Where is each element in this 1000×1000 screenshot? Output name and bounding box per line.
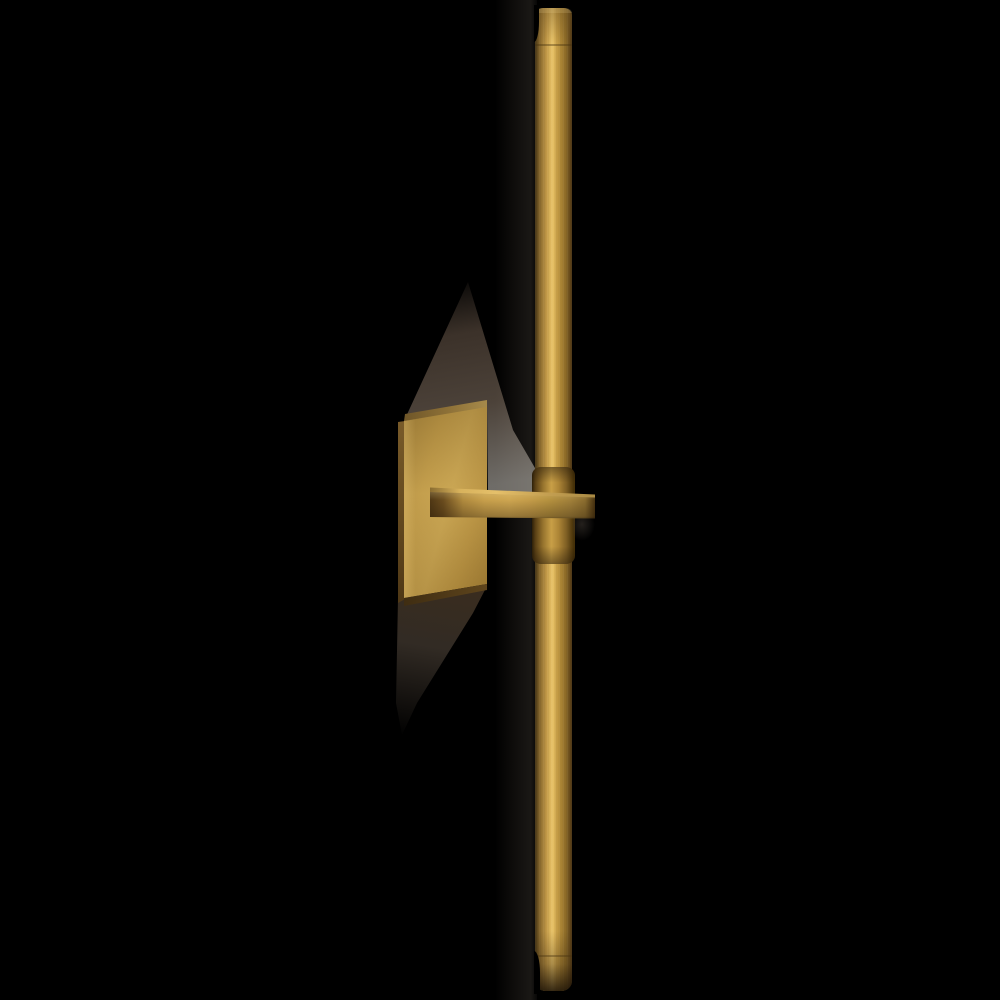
- wall-shadow-lower: [393, 583, 493, 745]
- rod-top-rim: [535, 8, 572, 13]
- arm-end-shadow: [573, 517, 595, 541]
- rod-top-seam: [535, 44, 572, 46]
- backplate-left-face: [398, 413, 405, 607]
- sconce-product-image: [0, 0, 1000, 1000]
- rod-bottom-cap: [535, 931, 572, 991]
- rod-top-cap: [535, 8, 572, 48]
- rod-bottom-seam: [535, 955, 572, 957]
